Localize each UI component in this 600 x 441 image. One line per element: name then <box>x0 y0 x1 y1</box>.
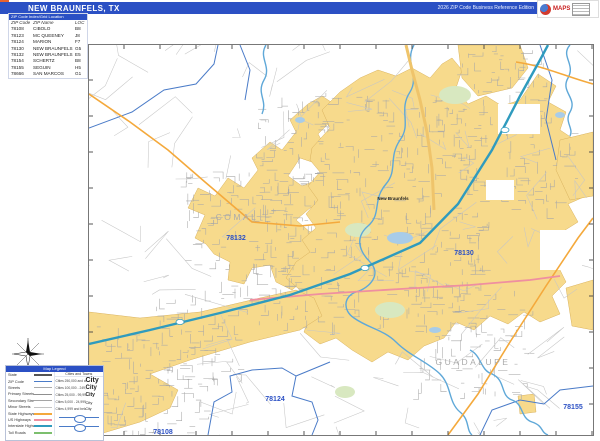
park-area <box>375 302 405 318</box>
route-shield-icon <box>361 265 369 270</box>
route-shield-icon <box>74 415 86 423</box>
county-label: GUADALUPE <box>436 357 511 367</box>
water-body <box>387 232 413 244</box>
legend-city-size: Cities 5,000 - 24,999City <box>55 399 104 406</box>
highway-shield-sample <box>59 423 100 431</box>
zip-code-label: 78132 <box>226 235 246 242</box>
unshaded-block <box>486 180 514 200</box>
zip-index-rows: 78108CIBOLOB878123MC QUEENEYJ878124MARIO… <box>9 26 87 77</box>
edition-label: 2026 ZIP Code Business Reference Edition <box>438 5 538 11</box>
map-drawing: COMALGUADALUPE7813278130781247810878155N… <box>89 45 593 435</box>
zip-code-label: 78124 <box>265 396 285 403</box>
route-shield-icon <box>74 424 86 432</box>
publisher-info-box <box>572 3 590 16</box>
zip-code-label: 78130 <box>454 250 474 257</box>
globe-icon <box>540 4 551 15</box>
zip-code-wall-map-poster: NEW BRAUNFELS, TX 2026 ZIP Code Business… <box>0 0 600 441</box>
map-title: NEW BRAUNFELS, TX <box>0 4 120 13</box>
zip-index-table: ZIP Code Index/Grid Location ZIP Code ZI… <box>8 13 88 79</box>
zip-code-label: 78155 <box>563 404 583 411</box>
logo-wordmark: MAPS <box>553 6 570 12</box>
zip-index-row: 78666SAN MARCOSG1 <box>9 71 87 77</box>
zip-area-polygon <box>286 58 590 362</box>
map-canvas: COMALGUADALUPE7813278130781247810878155N… <box>88 44 594 436</box>
water-body <box>429 327 441 333</box>
interstate-shield-sample <box>59 414 100 422</box>
legend-line-samples: StateZIP CodeStreetsPrimary StreetsSecon… <box>6 372 54 436</box>
zip-code-label: 78108 <box>153 429 173 435</box>
route-shield-icon <box>176 319 184 324</box>
zip-area-polygon <box>458 45 528 96</box>
zip-area-polygon <box>518 394 536 414</box>
city-label: New Braunfels <box>377 196 409 201</box>
water-body <box>295 117 305 123</box>
park-area <box>439 86 471 104</box>
publisher-logo: MAPS <box>537 0 599 18</box>
legend-city-size: Cities 250,000 and aboveCity <box>55 377 104 384</box>
legend-city-size: Cities 100,000 - 249,999City <box>55 384 104 391</box>
zip-area-polygon <box>566 280 593 330</box>
park-area <box>335 386 355 398</box>
legend-item-toll: Toll Roads <box>6 430 54 436</box>
legend-city-size: Cities 25,000 - 99,999City <box>55 391 104 398</box>
map-legend: Map Legend StateZIP CodeStreetsPrimary S… <box>5 365 104 441</box>
legend-city-size: Cities 4,999 and belowCity <box>55 406 104 413</box>
legend-city-samples: Cities and Towns Cities 250,000 and abov… <box>54 372 104 436</box>
route-shield-icon <box>501 127 509 132</box>
zip-area-polygon <box>89 290 322 435</box>
water-body <box>555 112 565 118</box>
county-label: COMAL <box>216 212 259 222</box>
park-area <box>345 223 371 237</box>
